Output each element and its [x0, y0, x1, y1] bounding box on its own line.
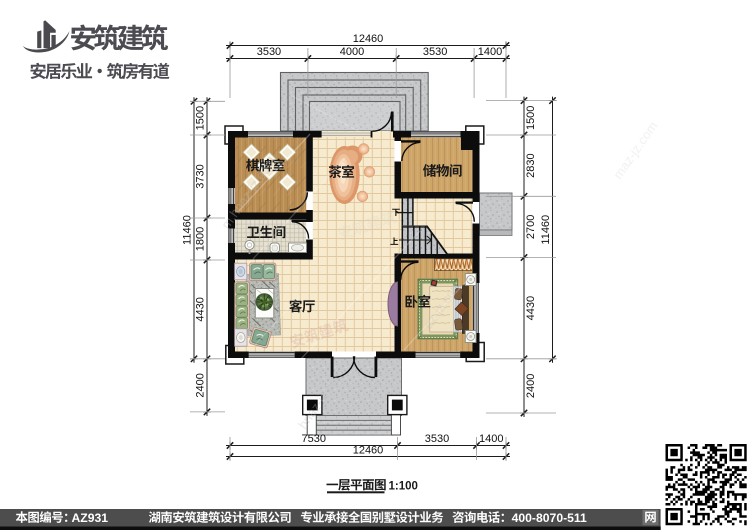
svg-text:3530: 3530 — [257, 46, 281, 58]
svg-text:4430: 4430 — [525, 296, 537, 320]
svg-text:12460: 12460 — [353, 33, 384, 45]
svg-text:1400: 1400 — [478, 46, 502, 58]
svg-text:3530: 3530 — [423, 46, 447, 58]
svg-text:12460: 12460 — [353, 444, 384, 456]
svg-text:1400: 1400 — [479, 433, 503, 445]
svg-text:400-8070-511: 400-8070-511 — [512, 511, 587, 525]
svg-text:4430: 4430 — [195, 297, 207, 321]
svg-text:7530: 7530 — [302, 433, 326, 445]
svg-text:1800: 1800 — [195, 227, 207, 251]
svg-text:2830: 2830 — [525, 153, 537, 177]
svg-text:4000: 4000 — [340, 46, 364, 58]
svg-text:3530: 3530 — [425, 433, 449, 445]
svg-text:11460: 11460 — [182, 215, 194, 245]
svg-text:2700: 2700 — [525, 215, 537, 239]
svg-text:11460: 11460 — [540, 215, 552, 245]
svg-text:2400: 2400 — [195, 373, 207, 397]
svg-text:2400: 2400 — [525, 374, 537, 398]
svg-text:1500: 1500 — [525, 106, 537, 130]
svg-text:1500: 1500 — [195, 106, 207, 130]
svg-text:1:100: 1:100 — [389, 481, 418, 493]
svg-text:AZ931: AZ931 — [72, 511, 109, 525]
svg-text:3730: 3730 — [195, 164, 207, 188]
